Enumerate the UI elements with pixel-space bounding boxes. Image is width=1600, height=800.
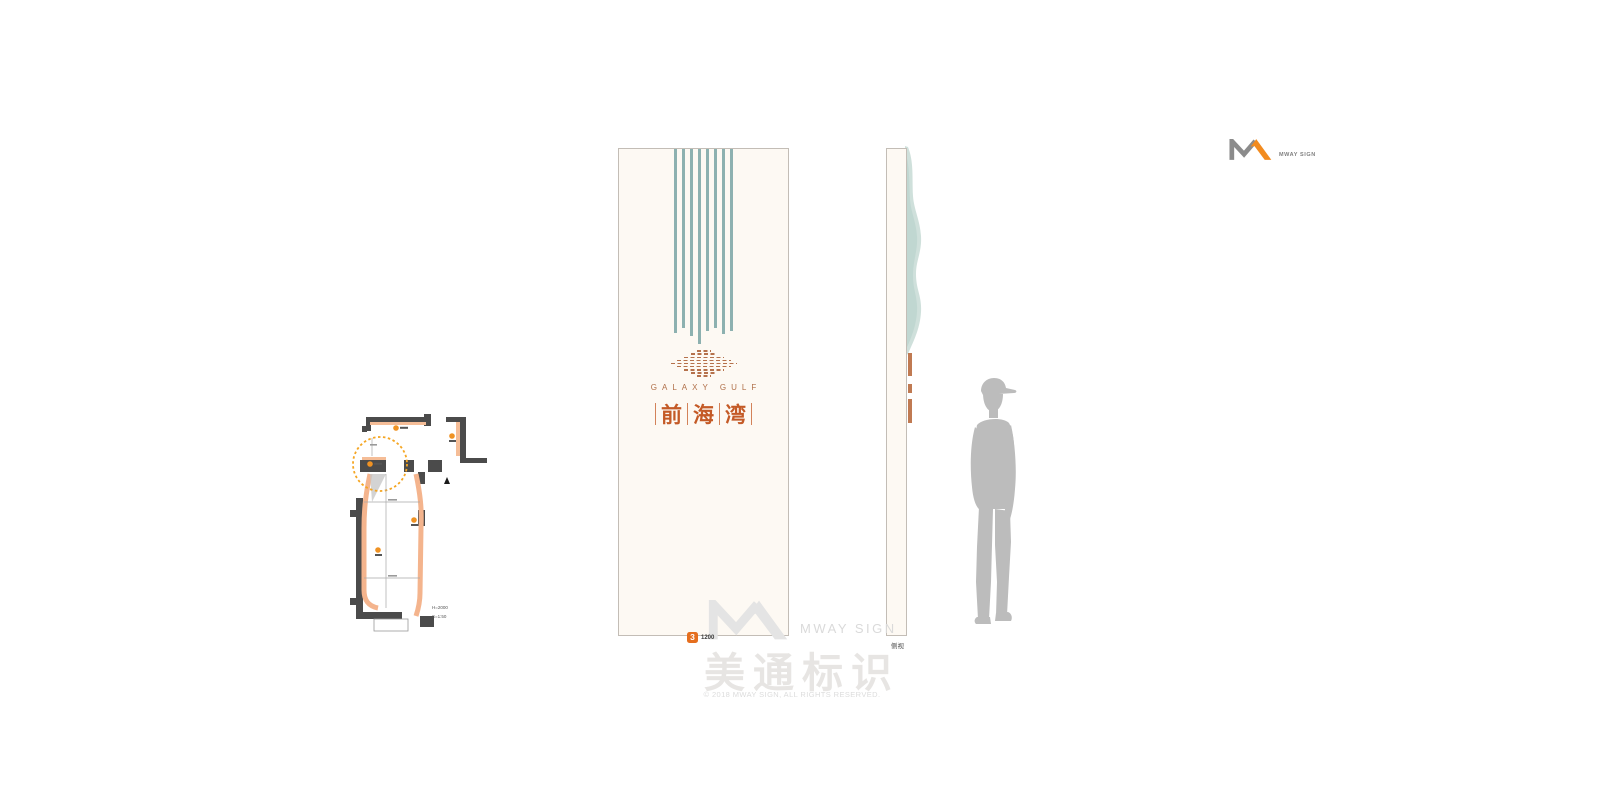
plan-door-opening bbox=[374, 619, 408, 631]
side-view-label: 侧视 bbox=[891, 640, 904, 650]
sign-front-elevation: GALAXY GULF 前 海 湾 bbox=[618, 148, 789, 636]
person-left-leg bbox=[976, 507, 993, 619]
wave-emblem-row bbox=[684, 369, 724, 371]
plan-shade bbox=[370, 474, 386, 502]
side-logo-mark bbox=[908, 399, 912, 423]
side-logo-mark bbox=[908, 353, 912, 376]
side-view-wave-shape bbox=[905, 146, 927, 358]
cn-separator bbox=[751, 403, 752, 425]
watermark-logo-icon bbox=[708, 600, 796, 640]
wave-emblem-row bbox=[697, 375, 711, 377]
teal-stripe bbox=[730, 149, 733, 331]
wave-emblem-icon bbox=[671, 350, 737, 376]
person-right-leg bbox=[995, 509, 1011, 615]
watermark-wordmark: MWAY SIGN bbox=[800, 621, 897, 636]
stripe-row bbox=[619, 149, 788, 344]
wave-emblem-row bbox=[677, 360, 731, 362]
plan-highlight-strips bbox=[362, 422, 460, 460]
sign-number-badge: 3 bbox=[687, 632, 698, 643]
wave-emblem-row bbox=[691, 353, 717, 355]
cn-separator bbox=[687, 403, 688, 425]
sign-side-elevation bbox=[886, 148, 907, 636]
teal-stripe bbox=[674, 149, 677, 333]
cn-char: 海 bbox=[693, 399, 714, 429]
cn-char: 湾 bbox=[725, 399, 746, 429]
mway-logo-icon bbox=[1229, 139, 1276, 160]
wave-emblem-row bbox=[671, 363, 737, 365]
wave-emblem-row bbox=[697, 350, 711, 352]
side-logo-mark bbox=[908, 384, 912, 393]
person-cap bbox=[981, 378, 1016, 395]
copyright-text: © 2018 MWAY SIGN, ALL RIGHTS RESERVED. bbox=[704, 690, 881, 699]
header-wordmark: MWAY SIGN bbox=[1279, 152, 1316, 158]
wave-emblem-row bbox=[691, 372, 717, 374]
sign-logo-block: GALAXY GULF 前 海 湾 bbox=[619, 349, 788, 429]
teal-stripe bbox=[698, 149, 701, 344]
teal-stripe bbox=[706, 149, 709, 331]
cn-char: 前 bbox=[661, 399, 682, 429]
person-silhouette bbox=[953, 377, 1033, 627]
wave-emblem-row bbox=[684, 357, 724, 359]
teal-stripe bbox=[682, 149, 685, 328]
floor-plan: H=2000 S=1:50 bbox=[340, 398, 490, 636]
teal-stripe bbox=[690, 149, 693, 336]
plan-north-triangle bbox=[444, 477, 450, 484]
brand-cn-label: 前 海 湾 bbox=[619, 399, 788, 429]
person-left-foot bbox=[975, 617, 991, 624]
plan-scale-note: S=1:50 bbox=[432, 614, 447, 619]
cn-separator bbox=[719, 403, 720, 425]
teal-stripe bbox=[722, 149, 725, 334]
header-brand: MWAY SIGN bbox=[1229, 139, 1316, 160]
teal-stripe bbox=[714, 149, 717, 328]
plan-height-note: H=2000 bbox=[432, 605, 448, 610]
sign-width-label: 1200 bbox=[701, 635, 714, 641]
wave-emblem-row bbox=[677, 366, 731, 368]
person-right-foot bbox=[995, 612, 1012, 621]
cn-separator bbox=[655, 403, 656, 425]
brand-en-label: GALAXY GULF bbox=[624, 383, 788, 392]
